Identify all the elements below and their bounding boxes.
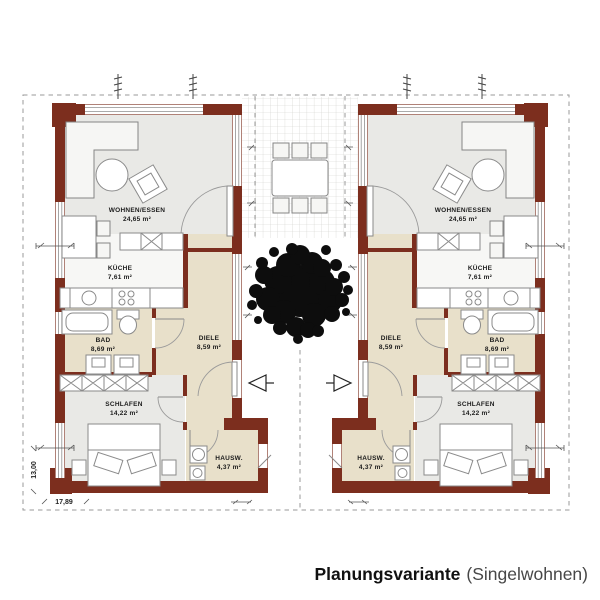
terrace	[242, 97, 358, 238]
svg-text:DIELE: DIELE	[199, 335, 220, 342]
svg-text:KÜCHE: KÜCHE	[108, 263, 133, 272]
svg-text:SCHLAFEN: SCHLAFEN	[105, 401, 142, 408]
svg-text:24,65 m²: 24,65 m²	[123, 216, 152, 223]
svg-text:SCHLAFEN: SCHLAFEN	[457, 401, 494, 408]
dimension-depth: 13,00	[31, 446, 38, 494]
svg-text:8,59 m²: 8,59 m²	[197, 344, 222, 351]
terrace-table	[272, 143, 328, 213]
svg-text:BAD: BAD	[96, 337, 111, 344]
svg-text:17,89: 17,89	[55, 499, 73, 506]
svg-text:4,37 m²: 4,37 m²	[217, 464, 242, 471]
svg-text:14,22 m²: 14,22 m²	[462, 410, 491, 417]
svg-text:KÜCHE: KÜCHE	[468, 263, 493, 272]
svg-text:13,00: 13,00	[31, 461, 38, 479]
tree-icon	[247, 243, 353, 344]
plan-title: Planungsvariante(Singelwohnen)	[315, 564, 589, 584]
svg-text:BAD: BAD	[490, 337, 505, 344]
svg-text:8,69 m²: 8,69 m²	[91, 346, 116, 353]
svg-text:8,59 m²: 8,59 m²	[379, 344, 404, 351]
svg-text:4,37 m²: 4,37 m²	[359, 464, 384, 471]
svg-text:24,65 m²: 24,65 m²	[449, 216, 478, 223]
svg-text:WOHNEN/ESSEN: WOHNEN/ESSEN	[435, 207, 492, 214]
svg-text:8,69 m²: 8,69 m²	[485, 346, 510, 353]
svg-text:WOHNEN/ESSEN: WOHNEN/ESSEN	[109, 207, 166, 214]
svg-text:7,61 m²: 7,61 m²	[468, 274, 493, 281]
svg-text:HAUSW.: HAUSW.	[357, 455, 385, 462]
svg-text:14,22 m²: 14,22 m²	[110, 410, 139, 417]
floor-plan: WOHNEN/ESSEN 24,65 m² KÜCHE 7,61 m² BAD …	[0, 0, 600, 600]
svg-text:DIELE: DIELE	[381, 335, 402, 342]
dimension-width: 17,89	[42, 499, 89, 506]
svg-text:7,61 m²: 7,61 m²	[108, 274, 133, 281]
svg-text:HAUSW.: HAUSW.	[215, 455, 243, 462]
